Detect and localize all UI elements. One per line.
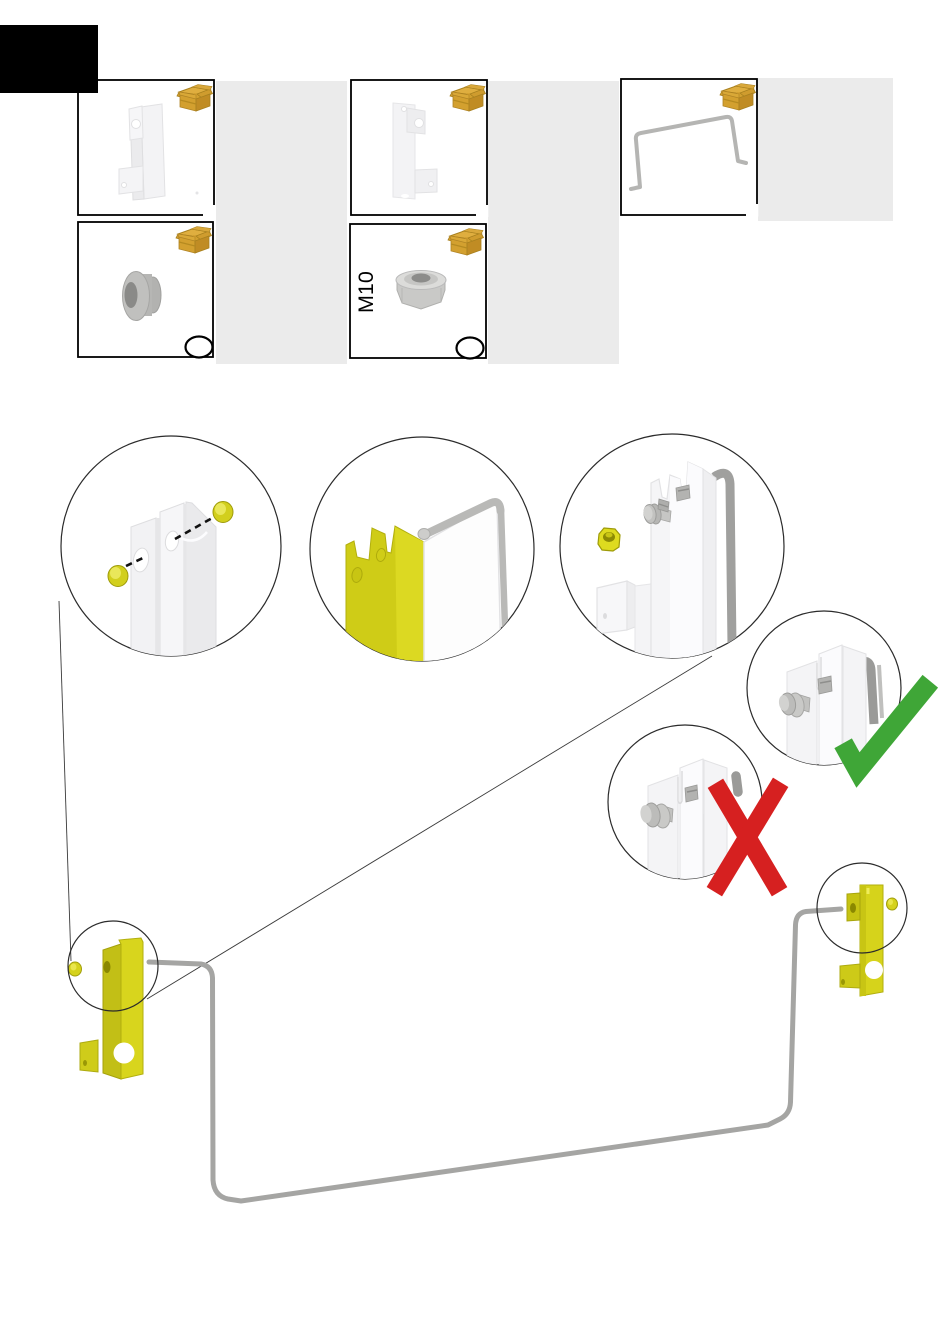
svg-text:M10: M10 xyxy=(354,271,378,313)
